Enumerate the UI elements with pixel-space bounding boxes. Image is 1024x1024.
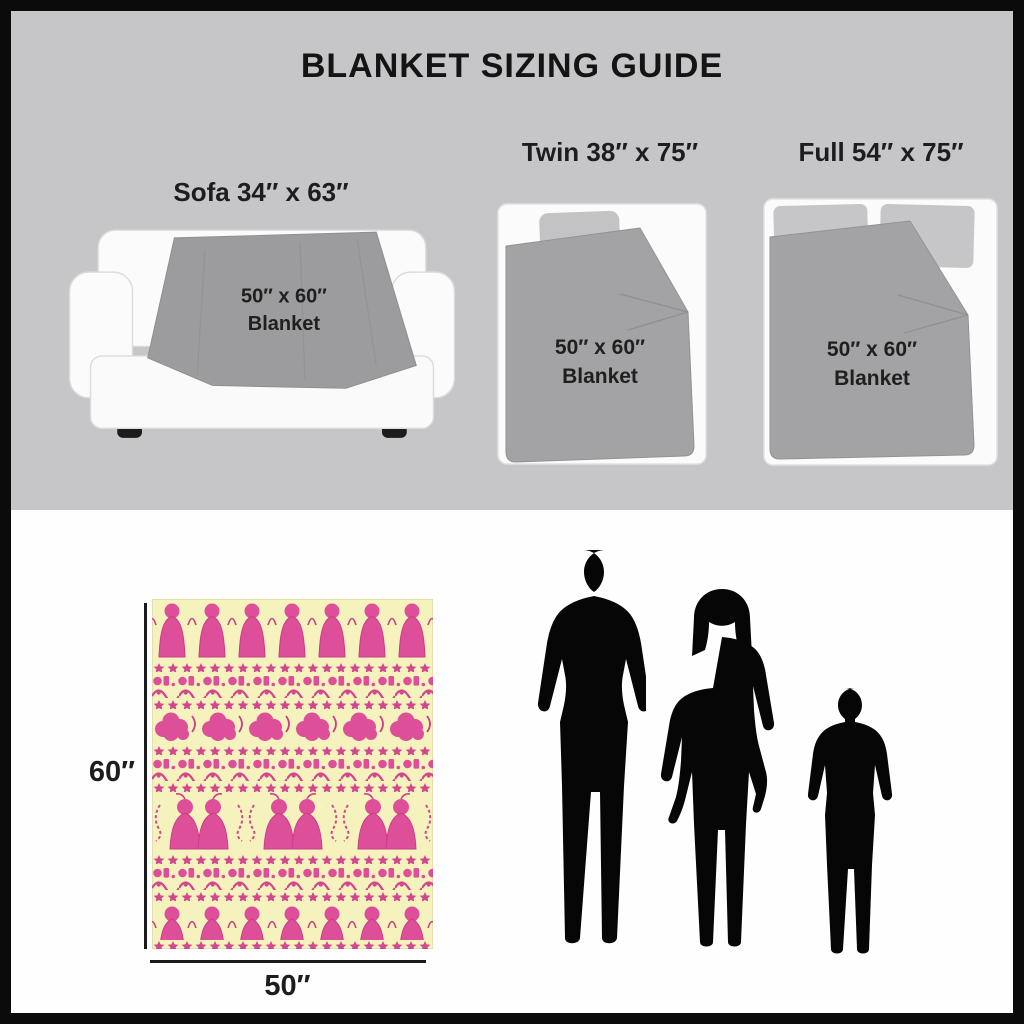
sofa-illustration: 50″ x 60″ Blanket bbox=[62, 222, 462, 447]
twin-blanket-size-text: 50″ x 60″ bbox=[555, 336, 645, 359]
full-bed-illustration: 50″ x 60″ Blanket bbox=[758, 193, 1003, 471]
height-dimension-line bbox=[144, 603, 147, 949]
man-silhouette bbox=[513, 547, 646, 965]
sofa-size-label: Sofa 34″ x 63″ bbox=[71, 177, 451, 208]
blanket-pattern-swatch bbox=[152, 599, 433, 949]
blanket-height-label: 60″ bbox=[60, 756, 135, 789]
twin-blanket-word-text: Blanket bbox=[562, 365, 638, 388]
page-title: BLANKET SIZING GUIDE bbox=[11, 47, 1013, 86]
full-blanket-size-text: 50″ x 60″ bbox=[827, 338, 917, 361]
sofa-blanket-word-text: Blanket bbox=[248, 313, 321, 335]
child-silhouette bbox=[796, 683, 894, 959]
infographic-frame: BLANKET SIZING GUIDE Sofa 34″ x 63″ Twin… bbox=[11, 11, 1013, 1013]
sofa-blanket-size-text: 50″ x 60″ bbox=[241, 286, 327, 308]
full-size-label: Full 54″ x 75″ bbox=[761, 137, 1001, 168]
bottom-section: 60″ 50″ bbox=[11, 510, 1013, 1013]
blanket-width-label: 50″ bbox=[240, 970, 335, 1003]
width-dimension-line bbox=[150, 960, 426, 963]
top-section: BLANKET SIZING GUIDE Sofa 34″ x 63″ Twin… bbox=[11, 11, 1013, 510]
twin-size-label: Twin 38″ x 75″ bbox=[495, 137, 725, 168]
full-blanket-word-text: Blanket bbox=[834, 367, 910, 390]
woman-silhouette bbox=[652, 585, 792, 953]
twin-bed-illustration: 50″ x 60″ Blanket bbox=[492, 198, 712, 470]
